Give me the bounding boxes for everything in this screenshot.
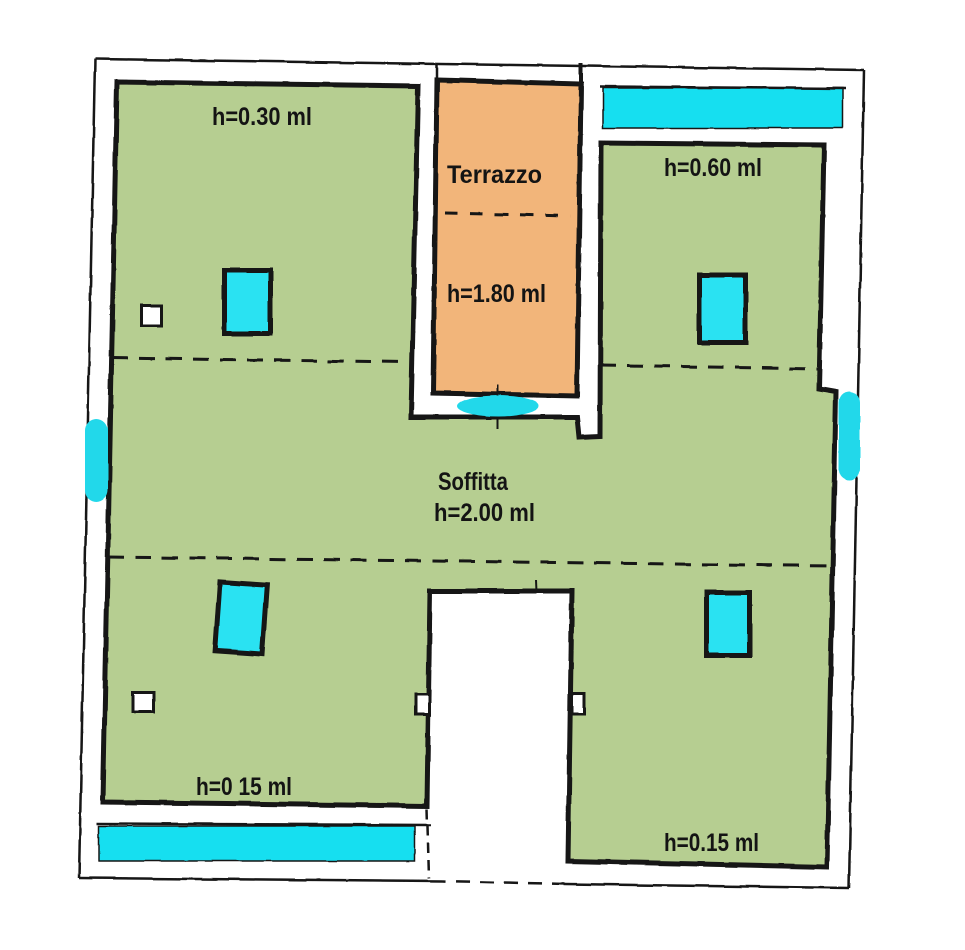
svg-text:Soffitta: Soffitta bbox=[438, 468, 509, 496]
svg-text:Terrazzo: Terrazzo bbox=[447, 161, 542, 189]
svg-text:h=2.00 ml: h=2.00 ml bbox=[434, 499, 535, 527]
svg-text:h=0.15 ml: h=0.15 ml bbox=[664, 829, 759, 857]
svg-text:h=0.60 ml: h=0.60 ml bbox=[664, 154, 762, 182]
svg-text:h=0.30 ml: h=0.30 ml bbox=[212, 103, 312, 131]
svg-text:h=0 15 ml: h=0 15 ml bbox=[196, 773, 292, 801]
svg-text:h=1.80 ml: h=1.80 ml bbox=[447, 280, 546, 308]
